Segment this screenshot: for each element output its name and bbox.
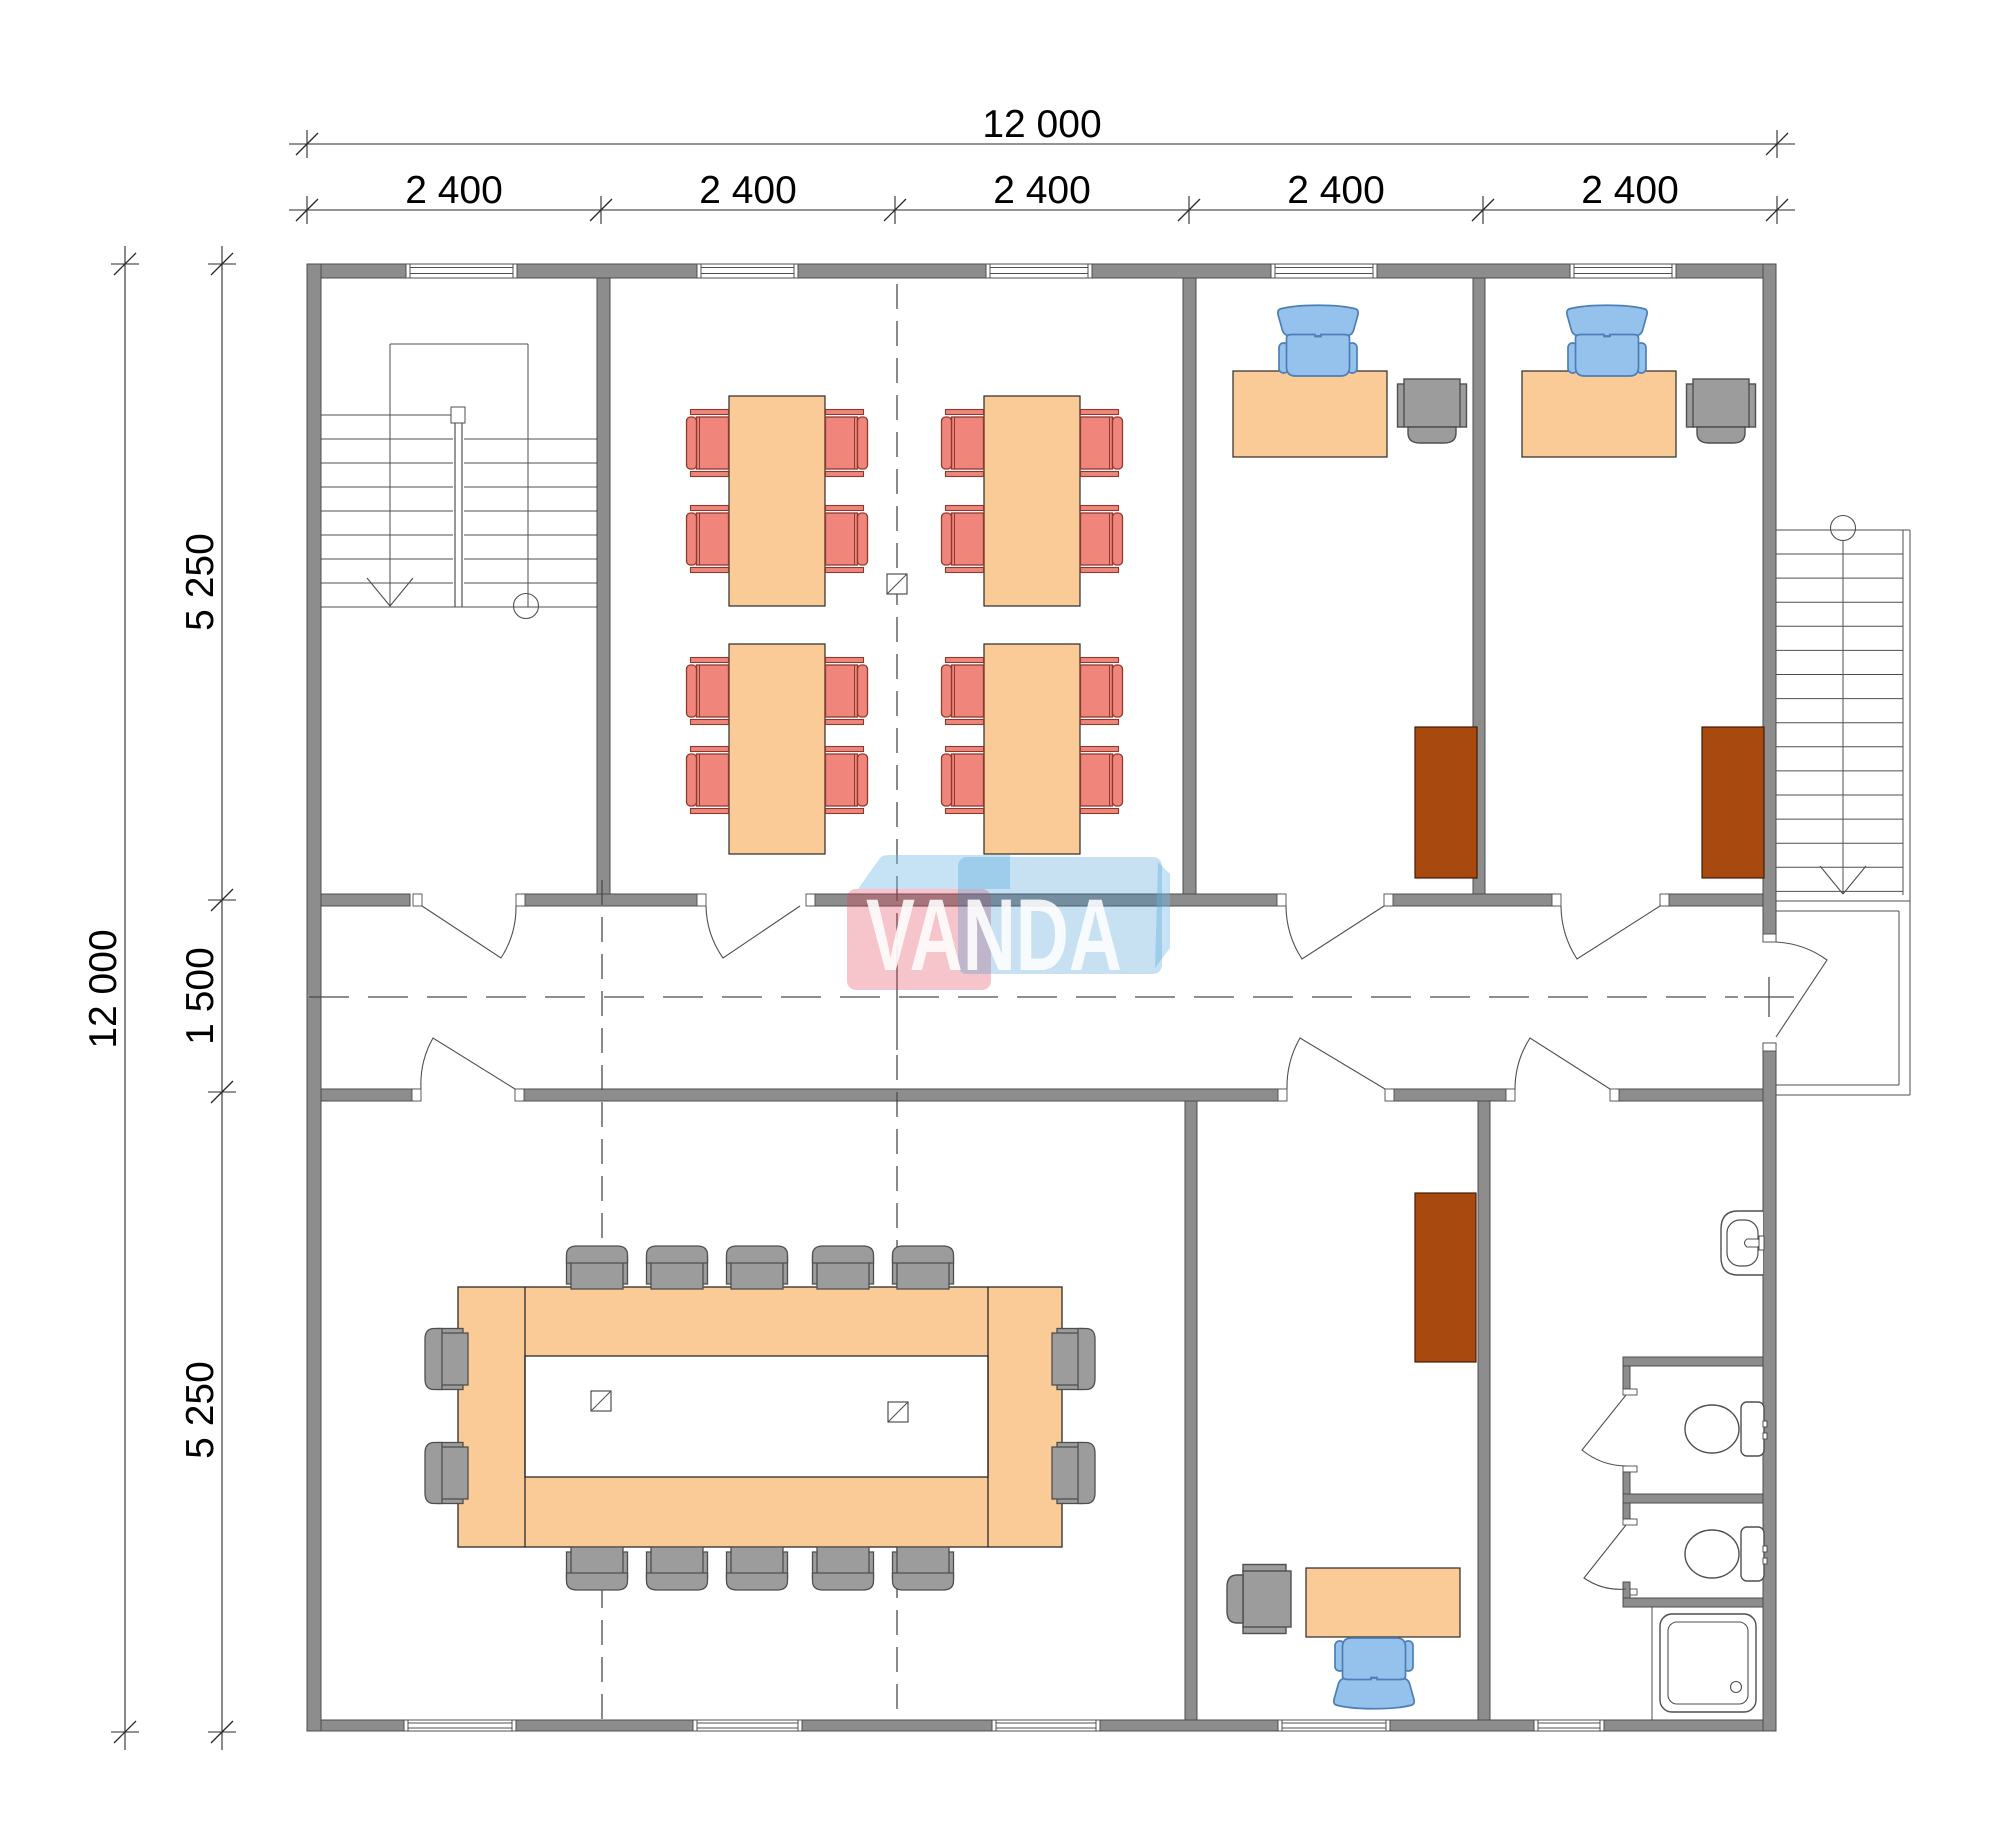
svg-text:2 400: 2 400: [1287, 169, 1385, 212]
svg-text:5 250: 5 250: [179, 1361, 222, 1459]
svg-text:1 500: 1 500: [179, 947, 222, 1045]
svg-text:VANDA: VANDA: [866, 878, 1122, 992]
svg-text:12 000: 12 000: [982, 103, 1101, 146]
svg-text:2 400: 2 400: [405, 169, 503, 212]
svg-text:2 400: 2 400: [993, 169, 1091, 212]
svg-text:12 000: 12 000: [82, 929, 125, 1048]
svg-text:2 400: 2 400: [1581, 169, 1679, 212]
svg-text:2 400: 2 400: [699, 169, 797, 212]
svg-text:5 250: 5 250: [179, 533, 222, 631]
